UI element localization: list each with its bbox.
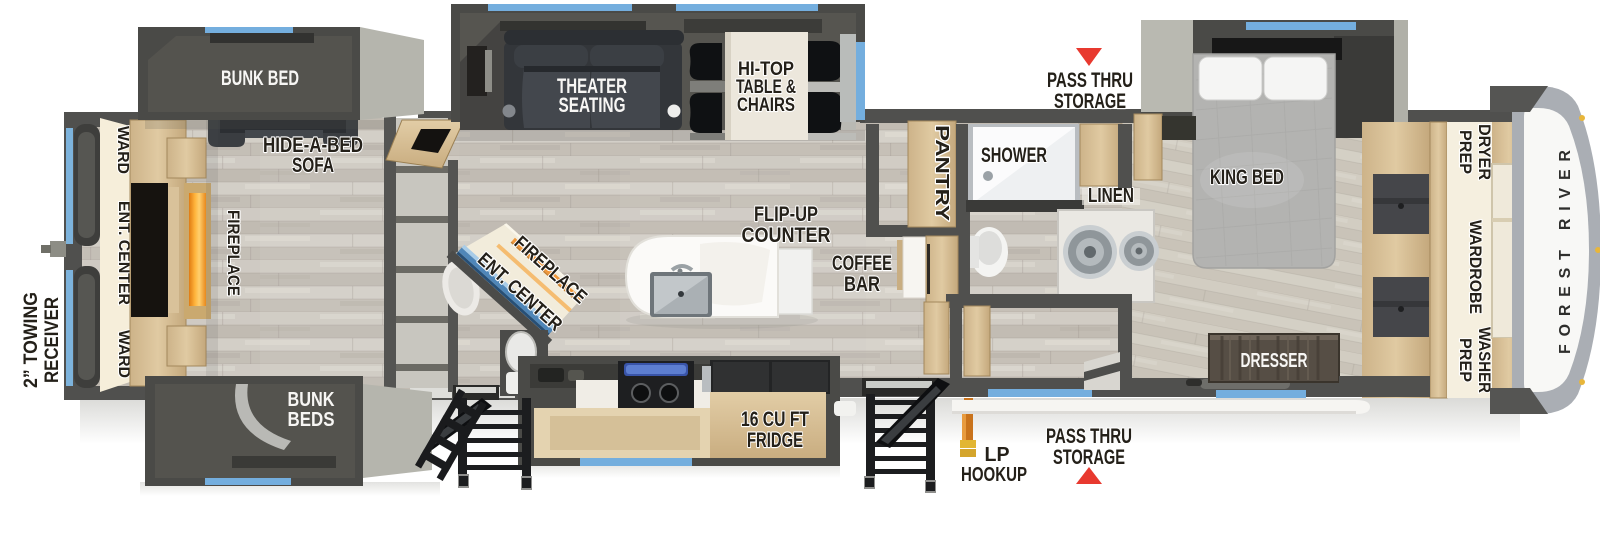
svg-text:WARD: WARD <box>115 330 132 378</box>
svg-text:STORAGE: STORAGE <box>1054 90 1126 113</box>
svg-text:COFFEE: COFFEE <box>832 252 892 275</box>
svg-text:FIREPLACE: FIREPLACE <box>224 210 243 296</box>
svg-text:WARD: WARD <box>114 126 131 174</box>
svg-text:LP: LP <box>985 444 1010 466</box>
svg-text:FRIDGE: FRIDGE <box>747 429 803 452</box>
svg-text:SHOWER: SHOWER <box>981 144 1047 167</box>
svg-text:KING BED: KING BED <box>1210 166 1284 189</box>
svg-text:16 CU FT: 16 CU FT <box>741 408 809 431</box>
svg-text:BEDS: BEDS <box>288 409 335 431</box>
svg-text:RECEIVER: RECEIVER <box>42 297 63 383</box>
svg-text:BUNK: BUNK <box>288 389 335 411</box>
svg-text:BUNK BED: BUNK BED <box>221 67 299 90</box>
svg-text:DRESSER: DRESSER <box>1241 350 1308 372</box>
svg-text:PASS THRU: PASS THRU <box>1047 69 1133 92</box>
svg-text:CHAIRS: CHAIRS <box>737 95 795 116</box>
svg-text:SOFA: SOFA <box>292 154 334 177</box>
svg-text:PANTRY: PANTRY <box>932 125 952 221</box>
svg-text:COUNTER: COUNTER <box>742 224 831 247</box>
svg-text:PREP: PREP <box>1456 130 1475 174</box>
svg-text:WARDROBE: WARDROBE <box>1466 220 1485 314</box>
svg-text:LINEN: LINEN <box>1088 185 1134 207</box>
svg-text:FLIP-UP: FLIP-UP <box>754 203 818 226</box>
svg-text:FOREST RIVER: FOREST RIVER <box>1557 146 1574 354</box>
svg-text:SEATING: SEATING <box>559 94 626 117</box>
svg-text:BAR: BAR <box>844 273 880 296</box>
svg-text:STORAGE: STORAGE <box>1053 446 1125 469</box>
svg-text:PREP: PREP <box>1456 338 1475 382</box>
svg-text:ENT. CENTER: ENT. CENTER <box>115 201 132 305</box>
svg-text:HOOKUP: HOOKUP <box>961 464 1027 486</box>
svg-text:2” TOWING: 2” TOWING <box>21 292 42 388</box>
svg-text:PASS THRU: PASS THRU <box>1046 425 1132 448</box>
